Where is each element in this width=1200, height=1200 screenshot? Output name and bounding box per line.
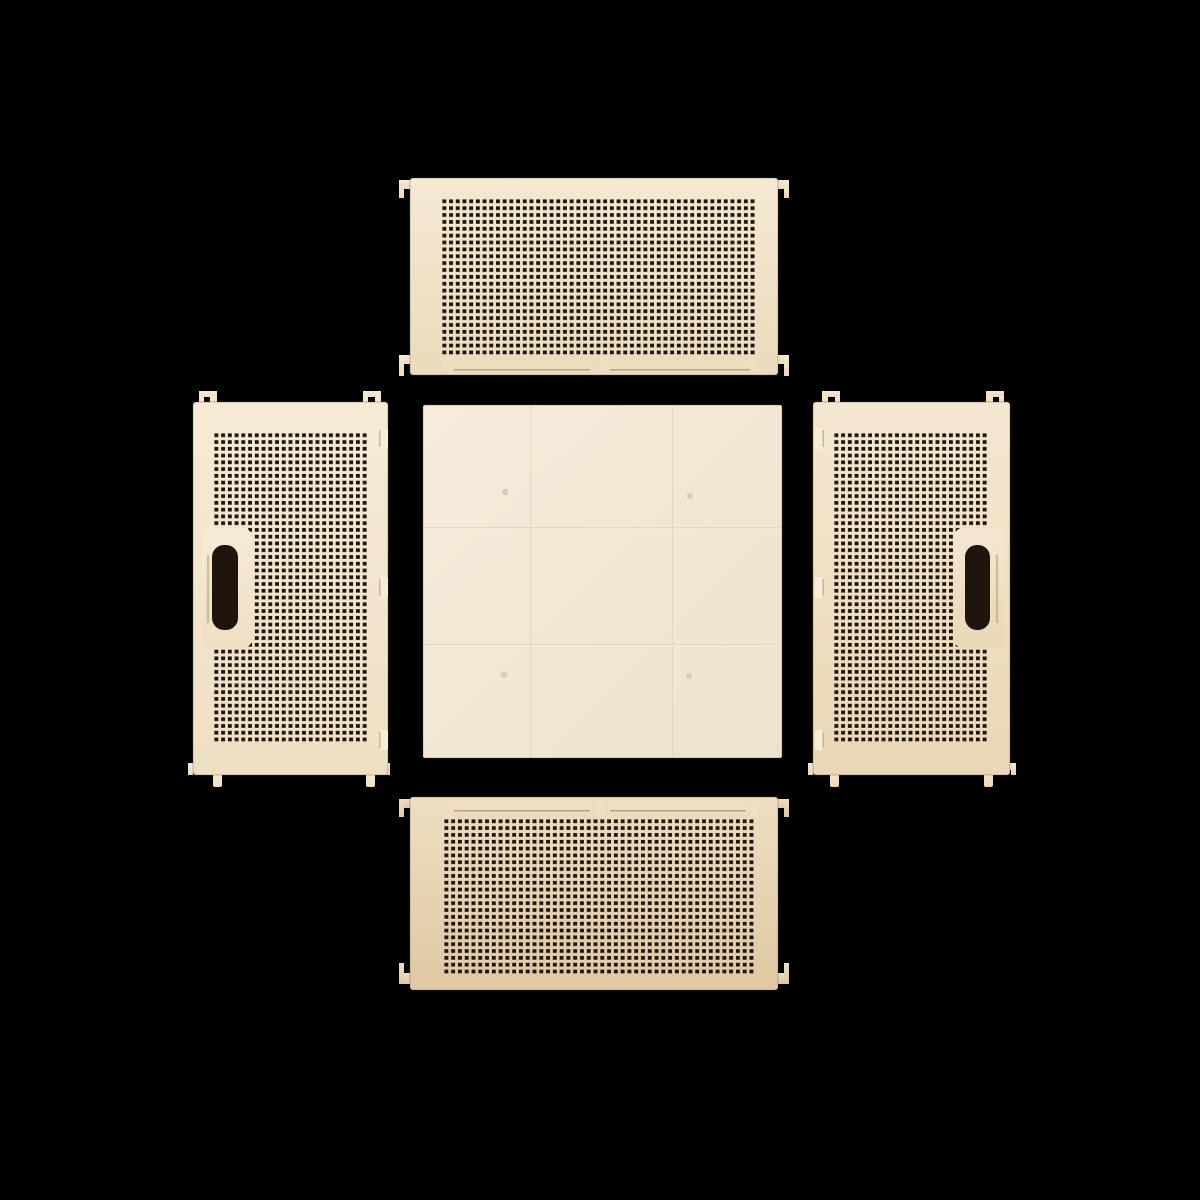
mold-dimple [687,493,693,499]
corner-hook-top-left [399,799,410,817]
crate-side-panel-left [186,384,402,788]
crate-side-panel-bottom [396,791,792,999]
hinge-bar-shadow [454,810,590,812]
corner-hook-bottom-right [778,355,789,376]
seam-highlight-1 [424,528,781,529]
hinge-bar-left [452,803,592,810]
hinge-bar-shadow [610,369,750,371]
seam-line-vertical-2 [672,406,673,757]
mold-dimple [501,672,507,678]
hinge-tab [442,356,451,370]
product-photo-stage [0,0,1200,1200]
seam-highlight-2 [424,645,781,646]
seam-line-horizontal-2 [424,644,781,645]
mesh-grid [443,818,755,975]
corner-hook-bottom-left [399,963,410,984]
corner-hook-bottom-right [778,963,789,984]
seam-line-horizontal-1 [424,527,781,528]
hinge-bar-right [608,803,748,810]
hinge-tab [600,356,609,370]
hinge-bar-left [452,362,592,369]
handle-cutout [965,545,990,630]
hinge-bar-right [608,362,752,369]
mold-dimple [502,489,508,495]
mesh-grid [441,198,756,356]
crate-side-panel-top [396,172,792,380]
corner-hook-bottom-left [399,355,410,376]
crate-side-panel-right [806,384,1022,788]
mold-dimple [686,673,692,679]
corner-hook-top-left [399,180,410,198]
hinge-bar-shadow [454,369,590,371]
handle-cutout [212,545,238,630]
hinge-tab [596,802,605,817]
seam-line-vertical-1 [530,406,531,757]
hinge-bar-shadow [610,810,746,812]
corner-hook-top-right [778,180,789,198]
hinge-tab [750,802,759,817]
panel-body [423,405,782,758]
crate-base-panel [420,402,786,762]
corner-hook-top-right [778,799,789,817]
